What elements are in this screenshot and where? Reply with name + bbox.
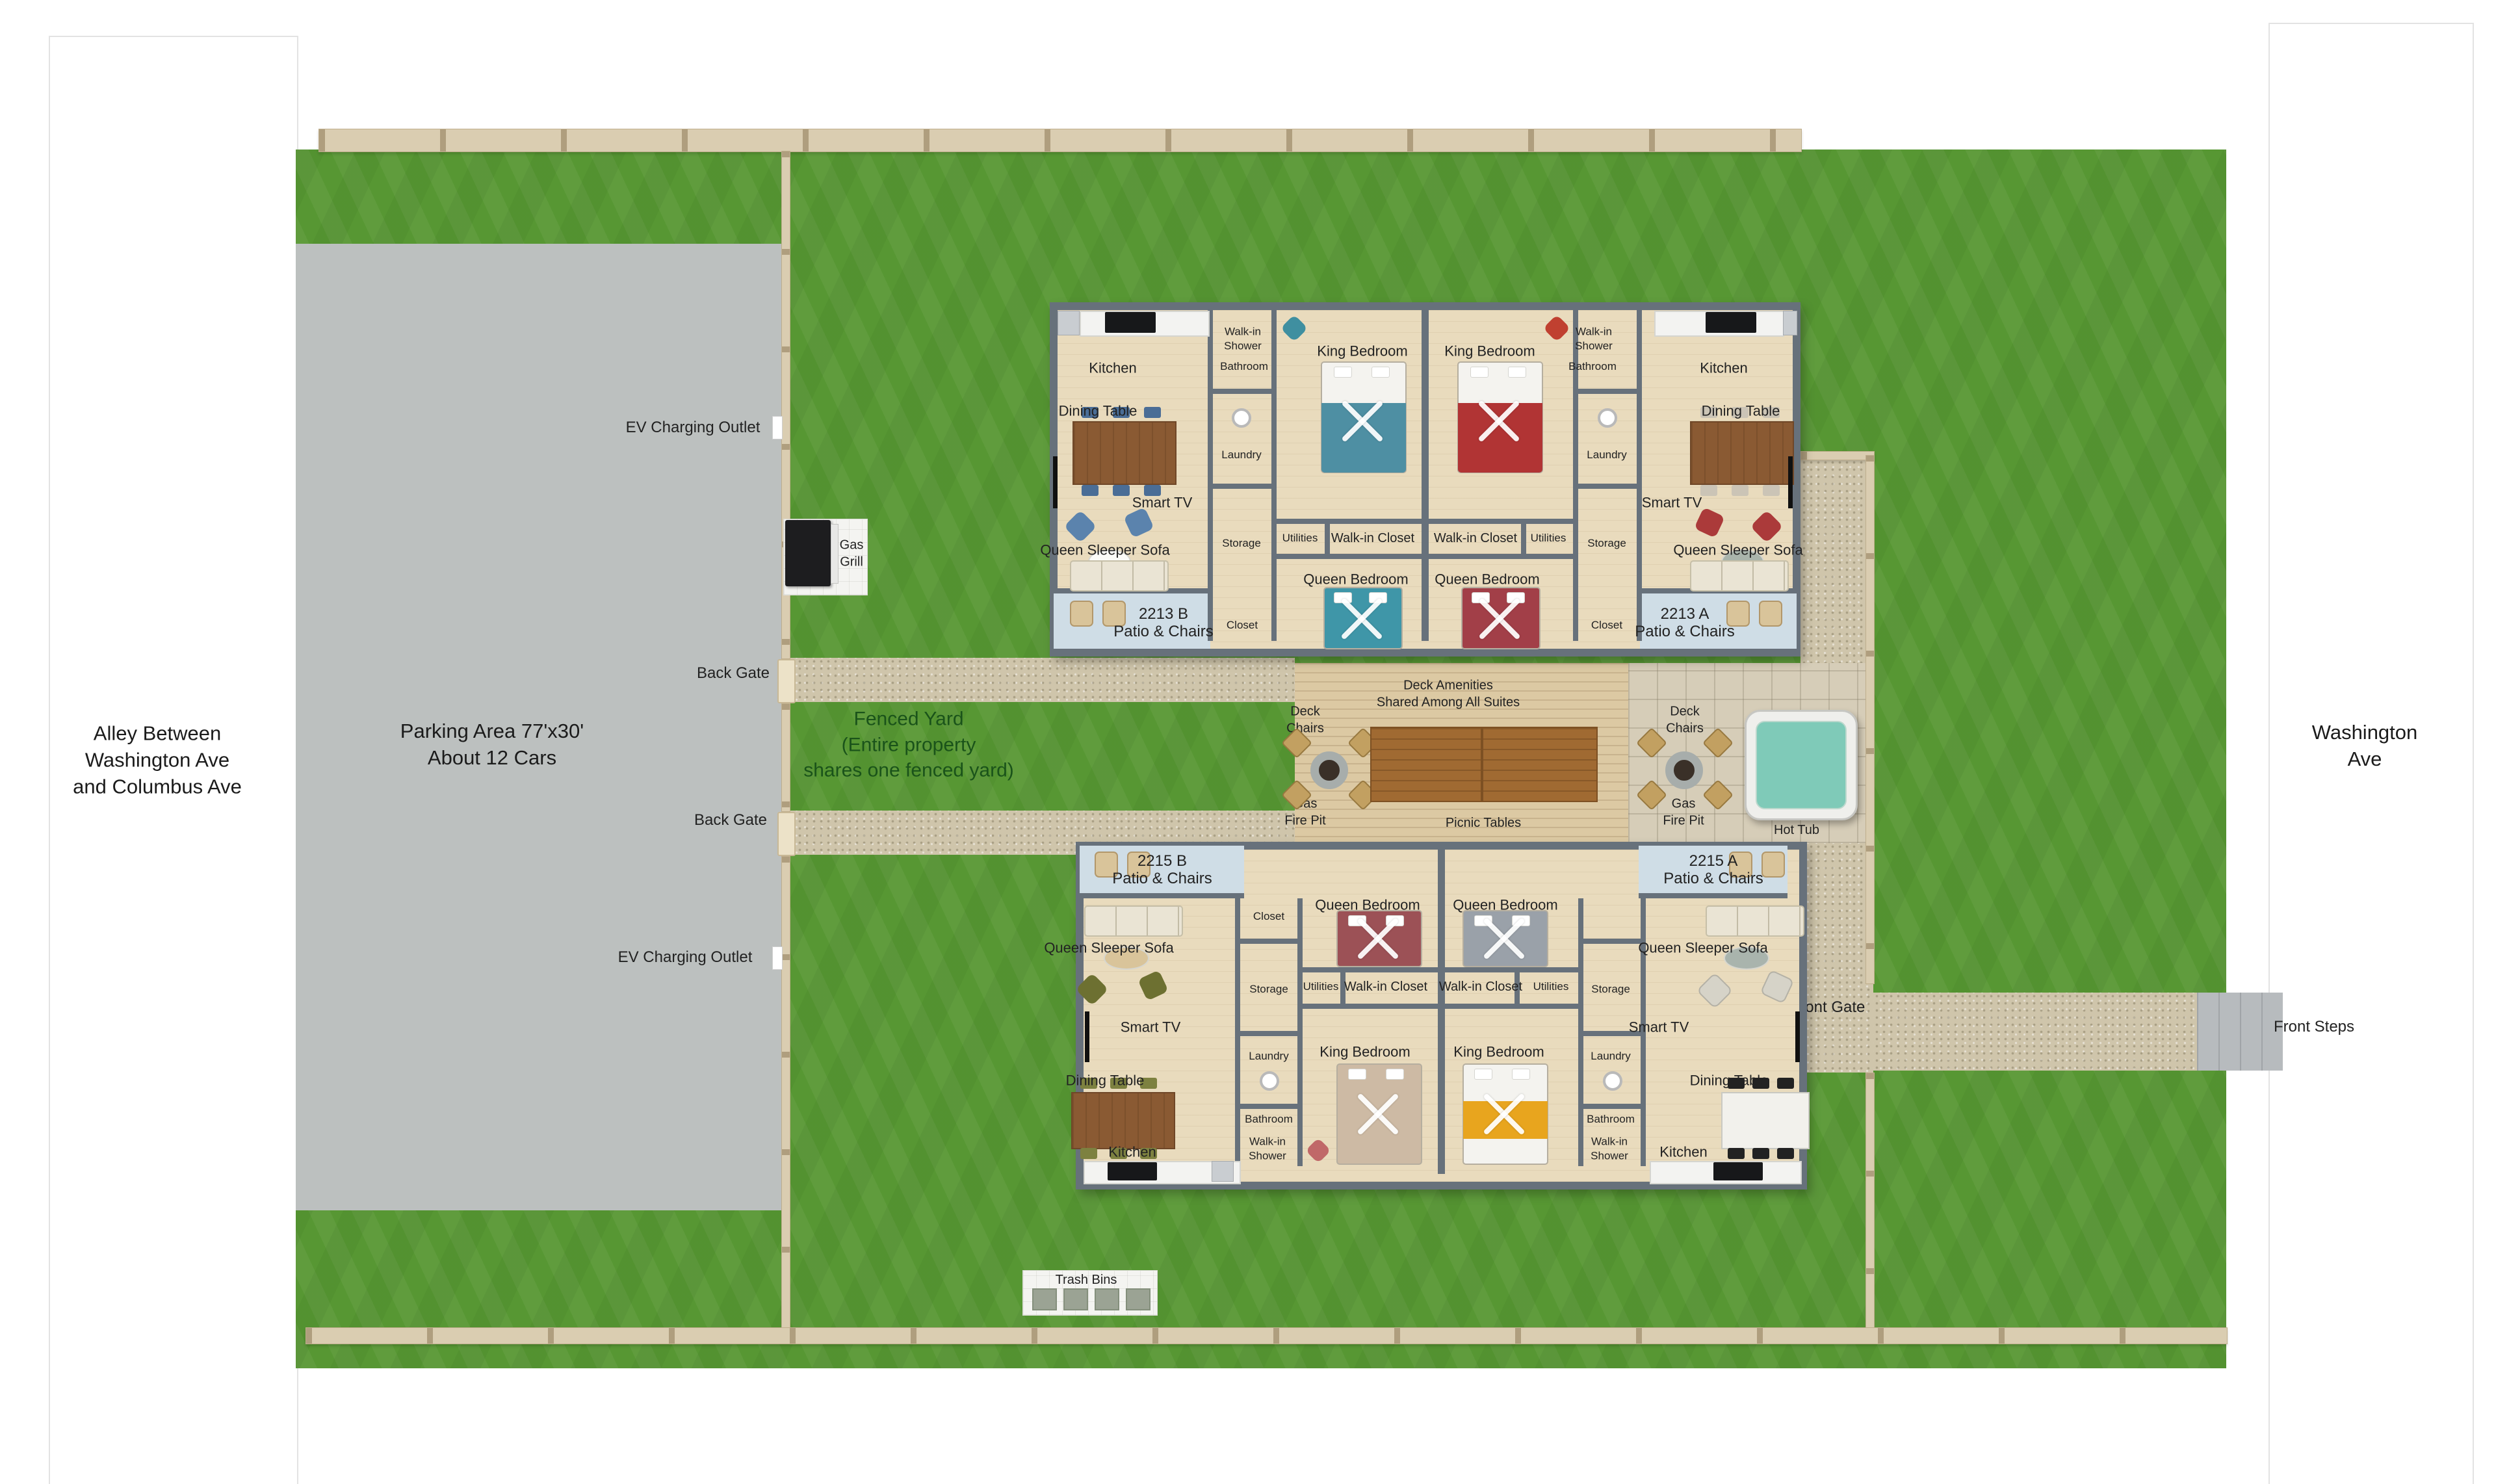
wall: [1238, 1104, 1300, 1109]
dining-chair: [1113, 407, 1130, 418]
wall: [1277, 554, 1422, 559]
dining-chair: [1752, 1148, 1769, 1159]
ceiling-fan: [1474, 909, 1534, 969]
ceiling-fan: [1332, 391, 1392, 451]
wall: [1581, 1031, 1641, 1036]
wall: [1521, 519, 1526, 558]
wall: [1271, 310, 1277, 641]
stove: [1706, 312, 1756, 333]
trash-bin-3: [1095, 1288, 1119, 1310]
dining-chair: [1728, 1148, 1745, 1159]
fence-east-upper: [1865, 455, 1875, 984]
stove: [1713, 1162, 1763, 1180]
alley-road: [49, 36, 298, 1484]
smart-tv-screen: [1788, 456, 1793, 508]
dining-chair: [1113, 485, 1130, 496]
hot-tub: [1745, 710, 1858, 820]
stove: [1108, 1162, 1157, 1180]
wall: [1641, 898, 1646, 1166]
washer: [1260, 1071, 1279, 1091]
dining-chair: [1144, 485, 1161, 496]
patio-chair: [1102, 601, 1126, 627]
picnic-table-2: [1482, 727, 1598, 802]
ceiling-fan: [1469, 391, 1529, 451]
ceiling-fan: [1474, 1084, 1534, 1144]
dining-chair: [1777, 1148, 1794, 1159]
dining-chair: [1140, 1078, 1157, 1089]
fire-pit-left: [1310, 751, 1348, 789]
ev-outlet-top: [772, 416, 783, 439]
wall: [1581, 1104, 1641, 1109]
front-gate-path: [1873, 993, 2197, 1071]
fence-west-middle: [781, 703, 790, 812]
dining-chair: [1080, 1148, 1097, 1159]
smart-tv-screen: [1085, 1011, 1089, 1062]
dining-chair: [1082, 485, 1098, 496]
wall: [1576, 389, 1639, 394]
sleeper-sofa: [1706, 905, 1804, 937]
picnic-table-1: [1370, 727, 1482, 802]
wall: [1080, 893, 1244, 898]
patio-chair: [1759, 601, 1782, 627]
dining-chair: [1777, 1078, 1794, 1089]
wall: [1514, 967, 1520, 1008]
ceiling-fan: [1470, 589, 1529, 649]
patio-chair: [1729, 852, 1752, 878]
coffee-table: [1724, 946, 1769, 970]
wall: [1325, 519, 1330, 558]
trash-bin-2: [1063, 1288, 1088, 1310]
wall: [1581, 939, 1641, 944]
washington-ave-road: [2268, 23, 2474, 1484]
dining-chair: [1732, 407, 1748, 418]
coffee-table: [1104, 946, 1149, 970]
fence-north: [318, 129, 1802, 152]
patio-chair: [1070, 601, 1093, 627]
front-steps: [2197, 993, 2283, 1071]
fence-east-connector: [1800, 451, 1875, 460]
gas-grill-shelf: [831, 524, 838, 584]
wall: [1639, 893, 1787, 898]
wall: [1443, 1004, 1578, 1009]
wall: [1573, 310, 1578, 641]
wall: [1340, 967, 1345, 1008]
dining-chair: [1752, 1078, 1769, 1089]
patio-chair: [1095, 852, 1118, 878]
stove: [1105, 312, 1156, 333]
dining-chair: [1082, 407, 1098, 418]
sleeper-sofa: [1690, 560, 1789, 592]
wall: [1429, 554, 1573, 559]
fence-south: [305, 1327, 2228, 1344]
back-gate-top: [777, 659, 796, 703]
dining-chair: [1763, 485, 1780, 496]
dining-chair: [1728, 1078, 1745, 1089]
wall: [1576, 484, 1639, 489]
sleeper-sofa: [1084, 905, 1183, 937]
side-path-bottom: [1800, 843, 1873, 1073]
fire-pit-right: [1665, 751, 1703, 789]
smart-tv-screen: [1053, 456, 1058, 508]
ev-outlet-bottom: [772, 946, 783, 970]
parking-lot: [296, 244, 783, 1210]
fence-east-lower: [1865, 1073, 1875, 1329]
dining-chair: [1140, 1148, 1157, 1159]
patio-chair: [1726, 601, 1750, 627]
wall: [1238, 1031, 1300, 1036]
trash-bin-4: [1126, 1288, 1150, 1310]
wall-2213-center: [1422, 302, 1429, 641]
dining-chair: [1110, 1078, 1127, 1089]
dining-chair: [1080, 1078, 1097, 1089]
dining-table: [1071, 1092, 1175, 1149]
smart-tv-screen: [1795, 1011, 1800, 1062]
back-gate-bottom: [777, 812, 796, 856]
patio-chair: [1127, 852, 1150, 878]
washer: [1598, 408, 1617, 428]
fridge: [1058, 311, 1080, 335]
gas-grill: [785, 520, 831, 586]
patio-chair: [1761, 852, 1785, 878]
fence-west-lower: [781, 856, 790, 1331]
hot-tub-water: [1756, 721, 1847, 809]
dining-table: [1072, 421, 1176, 485]
ceiling-fan: [1332, 589, 1392, 649]
back-gate-path-top: [789, 658, 1295, 702]
wall: [1303, 1004, 1438, 1009]
ceiling-fan: [1348, 1084, 1408, 1144]
wall: [1210, 484, 1274, 489]
wall: [1210, 389, 1274, 394]
washer: [1232, 408, 1251, 428]
wall: [1208, 310, 1213, 641]
dining-chair: [1700, 485, 1717, 496]
dining-table: [1690, 421, 1794, 485]
trash-bin-1: [1032, 1288, 1057, 1310]
wall: [1637, 310, 1642, 641]
dining-chair: [1110, 1148, 1127, 1159]
site-plan: Alley Between Washington Ave and Columbu…: [0, 0, 2496, 1484]
wall: [1238, 939, 1300, 944]
dining-chair: [1144, 407, 1161, 418]
wall: [1277, 519, 1422, 524]
dining-chair: [1700, 407, 1717, 418]
side-path-top: [1800, 459, 1873, 663]
dining-table: [1721, 1092, 1810, 1149]
sleeper-sofa: [1070, 560, 1169, 592]
washer: [1603, 1071, 1622, 1091]
fridge: [1212, 1161, 1234, 1182]
wall: [1429, 519, 1573, 524]
dining-chair: [1763, 407, 1780, 418]
dining-chair: [1732, 485, 1748, 496]
fridge: [1783, 311, 1797, 335]
ceiling-fan: [1348, 909, 1408, 969]
